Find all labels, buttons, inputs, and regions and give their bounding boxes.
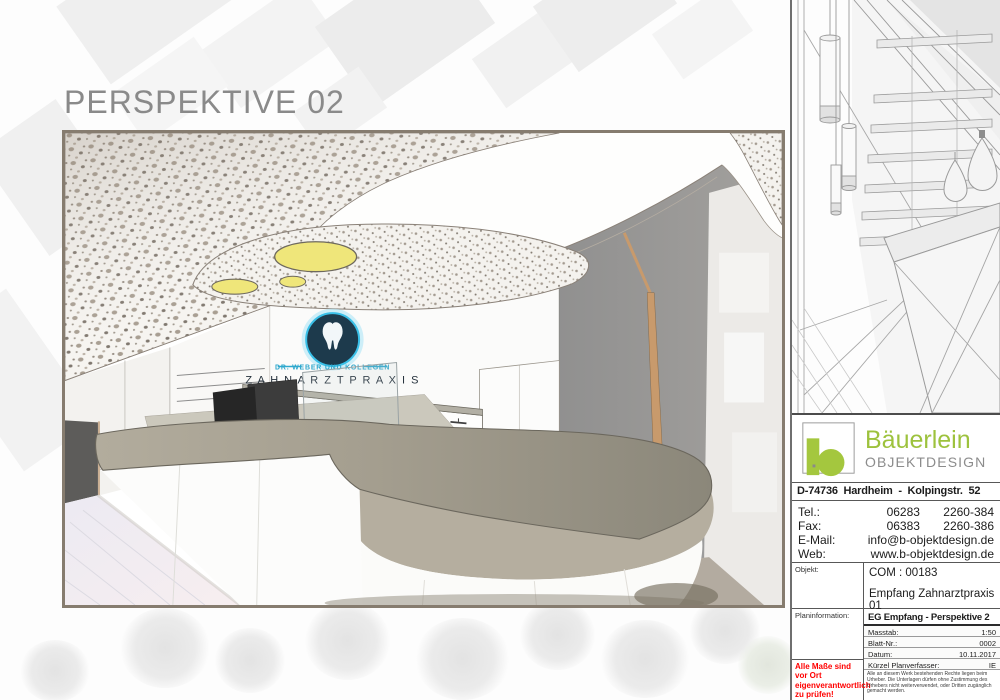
perspective-render-frame: DR. WEBER UND KOLLEGEN Z A H N A R Z T P… [62,130,785,608]
company-address: D-74736 Hardheim - Kolpingstr. 52 [792,483,1000,501]
contact-row-tel: Tel.: 06283 2260-384 [798,505,994,519]
round-ceiling-light-medium [212,279,258,294]
plan-row-label: Blatt-Nr.: [868,639,897,648]
plan-row-label: Masstab: [868,628,898,637]
planinfo-table: EG Empfang - Perspektive 2 Masstab: 1:50… [864,609,1000,700]
contact-value: 06283 2260-384 [887,505,994,519]
contact-block: Tel.: 06283 2260-384 Fax: 06383 2260-386… [792,501,1000,563]
title-block-sidebar: Bäuerlein OBJEKTDESIGN D-74736 Hardheim … [790,0,1000,700]
plan-row-kuerzel: Kürzel Planverfasser: IE [864,659,1000,670]
page-title: PERSPEKTIVE 02 [64,84,345,121]
doorway-opening [65,420,98,503]
planinfo-left-column: Planinformation: Alle Maße sind vor Ort … [792,609,864,700]
contact-row-fax: Fax: 06383 2260-386 [798,519,994,533]
copyright-notice: Alle an diesem Werk bestehenden Rechte l… [864,670,1000,700]
plan-row-label: Kürzel Planverfasser: [868,661,939,670]
objekt-section: Objekt: COM : 00183 Empfang Zahnarztprax… [792,563,1000,609]
company-logo-icon [798,420,858,478]
objekt-code: COM : 00183 [869,567,995,579]
plan-row-datum: Datum: 10.11.2017 [864,648,1000,659]
plan-row-label: Datum: [868,650,892,659]
contact-label: Web: [798,547,826,561]
round-ceiling-light-small [280,276,306,287]
concept-sketch [792,0,1000,413]
contact-row-web: Web: www.b-objektdesign.de [798,547,994,561]
company-name: Bäuerlein [865,427,986,453]
objekt-label: Objekt: [792,563,864,608]
contact-value: 06383 2260-386 [887,519,994,533]
plan-row-blattnr: Blatt-Nr.: 0002 [864,637,1000,648]
plan-row-masstab: Masstab: 1:50 [864,626,1000,637]
contact-label: Tel.: [798,505,820,519]
contact-value: info@b-objektdesign.de [868,533,994,547]
round-ceiling-light-large [275,242,357,272]
concept-sketch-box [792,0,1000,415]
company-block: Bäuerlein OBJEKTDESIGN [792,415,1000,483]
contact-value: www.b-objektdesign.de [871,547,994,561]
planinfo-section: Planinformation: Alle Maße sind vor Ort … [792,609,1000,700]
plan-row-value: 1:50 [981,628,996,637]
plan-row-value: IE [989,661,996,670]
contact-label: Fax: [798,519,821,533]
company-tagline: OBJEKTDESIGN [865,454,986,470]
plan-row-value: 10.11.2017 [959,650,996,659]
contact-label: E-Mail: [798,533,835,547]
contact-row-email: E-Mail: info@b-objektdesign.de [798,533,994,547]
plan-row-value: 0002 [979,639,996,648]
plan-sheet: PERSPEKTIVE 02 [0,0,1000,700]
measurement-warning: Alle Maße sind vor Ort eigenverantwortli… [792,659,863,700]
plan-title: EG Empfang - Perspektive 2 [864,609,1000,626]
planinfo-label: Planinformation: [792,609,863,620]
reception-render: DR. WEBER UND KOLLEGEN Z A H N A R Z T P… [65,133,782,605]
